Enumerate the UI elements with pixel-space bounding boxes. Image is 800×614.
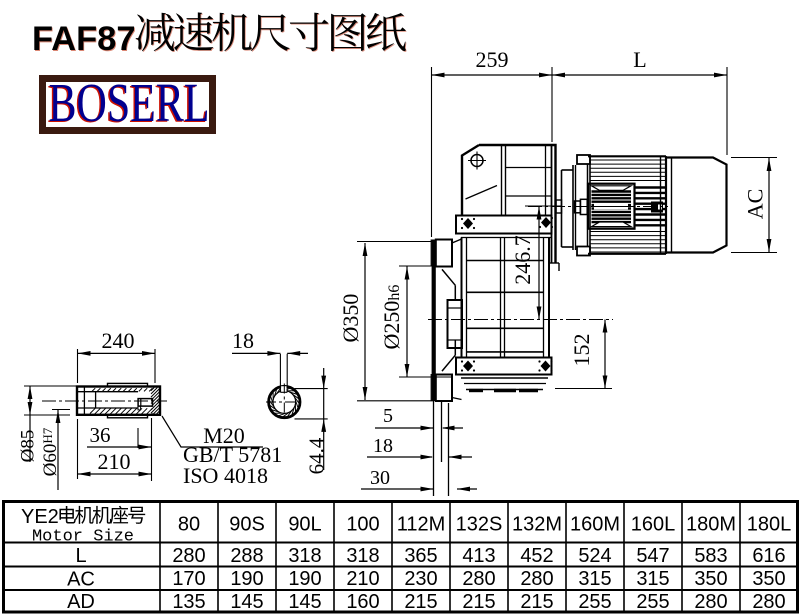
- svg-text:30: 30: [370, 467, 390, 489]
- svg-text:280: 280: [520, 568, 553, 590]
- svg-text:315: 315: [578, 568, 611, 590]
- svg-text:190: 190: [288, 568, 321, 590]
- svg-text:170: 170: [172, 568, 205, 590]
- svg-text:190: 190: [230, 568, 263, 590]
- svg-text:215: 215: [404, 591, 437, 613]
- svg-text:112M: 112M: [397, 514, 446, 536]
- svg-text:100: 100: [346, 514, 379, 536]
- svg-text:160L: 160L: [631, 514, 676, 536]
- svg-text:318: 318: [288, 545, 321, 567]
- svg-text:210: 210: [346, 568, 379, 590]
- svg-text:90S: 90S: [229, 514, 265, 536]
- svg-text:413: 413: [462, 545, 495, 567]
- svg-text:547: 547: [636, 545, 669, 567]
- svg-text:5: 5: [383, 405, 393, 427]
- svg-text:18: 18: [232, 328, 254, 353]
- svg-text:145: 145: [288, 591, 321, 613]
- svg-text:AD: AD: [67, 591, 95, 613]
- svg-text:350: 350: [752, 568, 785, 590]
- svg-text:240: 240: [102, 328, 135, 353]
- svg-text:152: 152: [569, 334, 594, 367]
- svg-text:280: 280: [752, 591, 785, 613]
- svg-text:36: 36: [90, 423, 111, 447]
- svg-text:Ø85: Ø85: [18, 430, 39, 463]
- svg-text:583: 583: [694, 545, 727, 567]
- svg-text:524: 524: [578, 545, 611, 567]
- svg-text:YE2: YE2: [21, 506, 59, 528]
- svg-text:230: 230: [404, 568, 437, 590]
- svg-text:180M: 180M: [686, 514, 736, 536]
- svg-text:18: 18: [373, 435, 393, 457]
- svg-text:AC: AC: [67, 569, 95, 591]
- svg-text:L: L: [75, 545, 86, 567]
- svg-text:Ø350: Ø350: [338, 294, 363, 343]
- svg-text:132S: 132S: [456, 514, 503, 536]
- svg-text:Motor Size: Motor Size: [32, 528, 134, 547]
- svg-text:616: 616: [752, 545, 785, 567]
- svg-text:BOSERL: BOSERL: [49, 73, 210, 134]
- svg-text:280: 280: [462, 568, 495, 590]
- svg-text:FAF87: FAF87: [32, 20, 136, 58]
- svg-text:255: 255: [578, 591, 611, 613]
- svg-text:160: 160: [346, 591, 379, 613]
- svg-text:315: 315: [636, 568, 669, 590]
- svg-text:288: 288: [230, 545, 263, 567]
- svg-text:365: 365: [404, 545, 437, 567]
- svg-text:452: 452: [520, 545, 553, 567]
- svg-text:259: 259: [476, 47, 509, 72]
- svg-text:318: 318: [346, 545, 379, 567]
- svg-text:80: 80: [178, 514, 200, 536]
- svg-text:160M: 160M: [570, 514, 620, 536]
- svg-text:AC: AC: [743, 189, 768, 220]
- svg-text:215: 215: [462, 591, 495, 613]
- svg-text:ISO 4018: ISO 4018: [183, 463, 268, 488]
- svg-text:280: 280: [694, 591, 727, 613]
- svg-text:210: 210: [98, 449, 131, 474]
- svg-text:90L: 90L: [288, 514, 321, 536]
- svg-text:L: L: [633, 47, 646, 72]
- svg-text:255: 255: [636, 591, 669, 613]
- svg-text:246.7: 246.7: [510, 235, 535, 285]
- svg-text:64.4: 64.4: [305, 437, 329, 474]
- svg-text:215: 215: [520, 591, 553, 613]
- svg-text:132M: 132M: [512, 514, 562, 536]
- svg-text:135: 135: [172, 591, 205, 613]
- svg-text:145: 145: [230, 591, 263, 613]
- svg-text:280: 280: [172, 545, 205, 567]
- svg-text:350: 350: [694, 568, 727, 590]
- svg-text:180L: 180L: [747, 514, 792, 536]
